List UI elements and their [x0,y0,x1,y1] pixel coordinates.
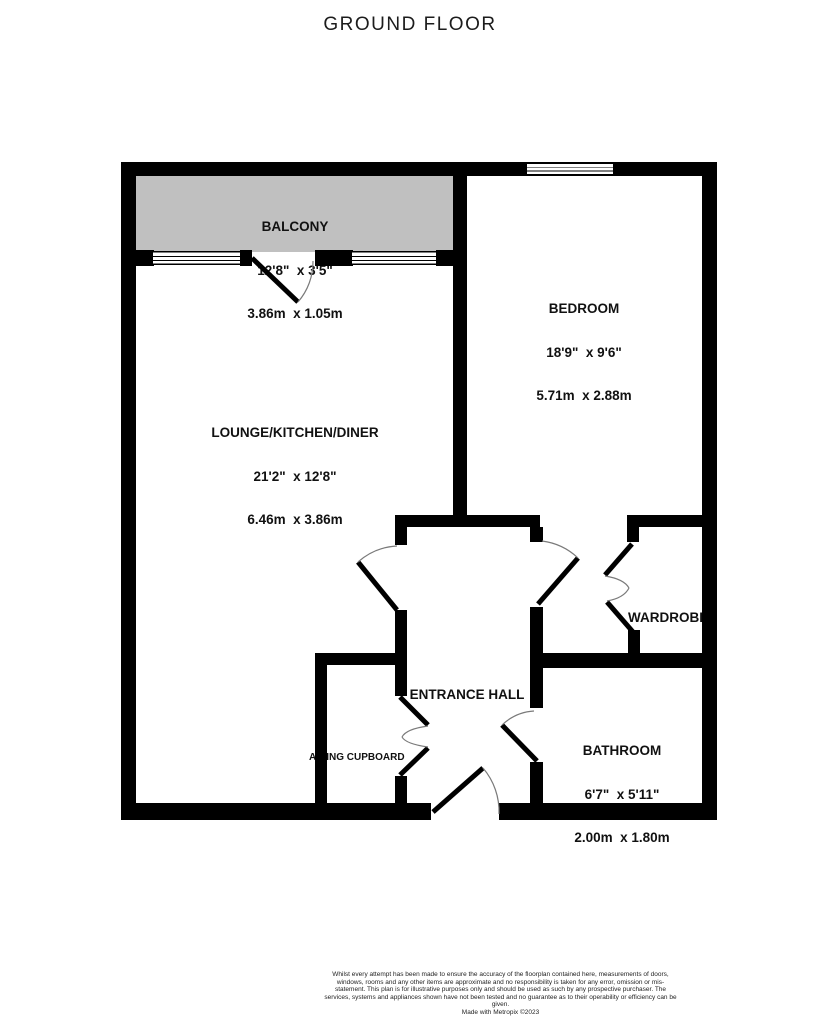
room-dim-metric: 2.00m x 1.80m [532,831,712,846]
room-name: BATHROOM [532,744,712,759]
room-dim-metric: 5.71m x 2.88m [464,389,704,404]
wall-wardrobe-top [627,515,717,527]
wall-wardrobe-stub [628,630,640,653]
credit-text: Made with Metropix ©2023 [323,1009,678,1017]
window-balcony-left [153,251,240,265]
door-leaf-bedroom [538,558,578,604]
wall-cupboard-top [315,653,399,665]
room-name: WARDROBE [628,611,738,626]
window-bedroom [527,163,613,175]
window-balcony-right [352,251,436,265]
room-label-lounge: LOUNGE/KITCHEN/DINER 21'2" x 12'8" 6.46m… [165,397,425,557]
wall-bottom-left [121,803,431,820]
wall-hall-top [395,515,540,527]
room-name: LOUNGE/KITCHEN/DINER [165,426,425,441]
wall-bathroom-top [530,653,717,668]
disclaimer-text: Whilst every attempt has been made to en… [323,971,678,1009]
door-arc-bedroom [542,541,578,558]
bifold-arc-wardrobe [605,576,629,601]
room-dim-imperial: 6'7" x 5'11" [532,788,712,803]
bifold-leaf-wardrobe [605,544,632,575]
wall-hall-left-stub [395,527,407,545]
floorplan-title: GROUND FLOOR [0,14,820,36]
room-dim-metric: 3.86m x 1.05m [165,307,425,322]
floorplan-page: GROUND FLOOR [0,0,837,1024]
room-dim-imperial: 18'9" x 9'6" [464,346,704,361]
room-name: BEDROOM [464,302,704,317]
room-label-entrance-hall: ENTRANCE HALL [400,659,534,732]
door-leaf-entrance [433,768,483,812]
room-dim-imperial: 21'2" x 12'8" [165,470,425,485]
wall-top [121,162,717,176]
room-label-wardrobe: WARDROBE [628,582,738,655]
wall-bathroom-left-stub [530,668,543,708]
wall-hall-left-stub [395,776,407,806]
wall-wardrobe-stub [627,527,639,542]
room-label-bathroom: BATHROOM 6'7" x 5'11" 2.00m x 1.80m [532,715,712,875]
door-leaf-lounge [358,562,397,610]
wall-balcony-segment [315,250,353,266]
wall-bathroom-left-stub [530,762,543,806]
footer: Whilst every attempt has been made to en… [323,971,678,1016]
room-dim-metric: 6.46m x 3.86m [165,513,425,528]
room-label-balcony: BALCONY 12'8" x 3'5" 3.86m x 1.05m [165,191,425,351]
room-name: BALCONY [165,220,425,235]
wall-hall-right-stub [530,527,543,542]
wall-balcony-segment [240,250,252,266]
room-label-bedroom: BEDROOM 18'9" x 9'6" 5.71m x 2.88m [464,273,704,433]
room-dim-imperial: 12'8" x 3'5" [165,264,425,279]
wall-right [702,162,717,820]
wall-balcony-segment [121,250,154,266]
wall-cupboard-left [315,653,327,818]
door-arc-entrance [483,768,499,814]
wall-lounge-bedroom-divider [453,162,467,527]
room-name: ENTRANCE HALL [400,688,534,703]
